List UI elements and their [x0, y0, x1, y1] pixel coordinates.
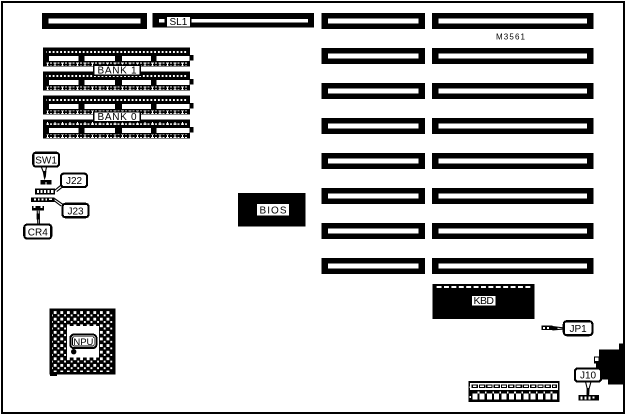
svg-text:NPU: NPU [73, 337, 93, 348]
svg-text:J23: J23 [67, 206, 84, 217]
svg-text:BANK 1: BANK 1 [98, 66, 137, 77]
svg-text:J22: J22 [66, 176, 83, 187]
svg-text:CR4: CR4 [28, 227, 48, 238]
svg-text:BIOS: BIOS [260, 206, 287, 217]
svg-text:KBD: KBD [474, 295, 495, 307]
svg-text:SL1: SL1 [170, 17, 188, 28]
svg-text:JP1: JP1 [569, 324, 587, 335]
svg-text:BANK 0: BANK 0 [98, 112, 137, 123]
svg-text:M3561: M3561 [496, 33, 526, 42]
svg-text:J10: J10 [580, 371, 597, 382]
svg-text:SW1: SW1 [35, 155, 57, 166]
